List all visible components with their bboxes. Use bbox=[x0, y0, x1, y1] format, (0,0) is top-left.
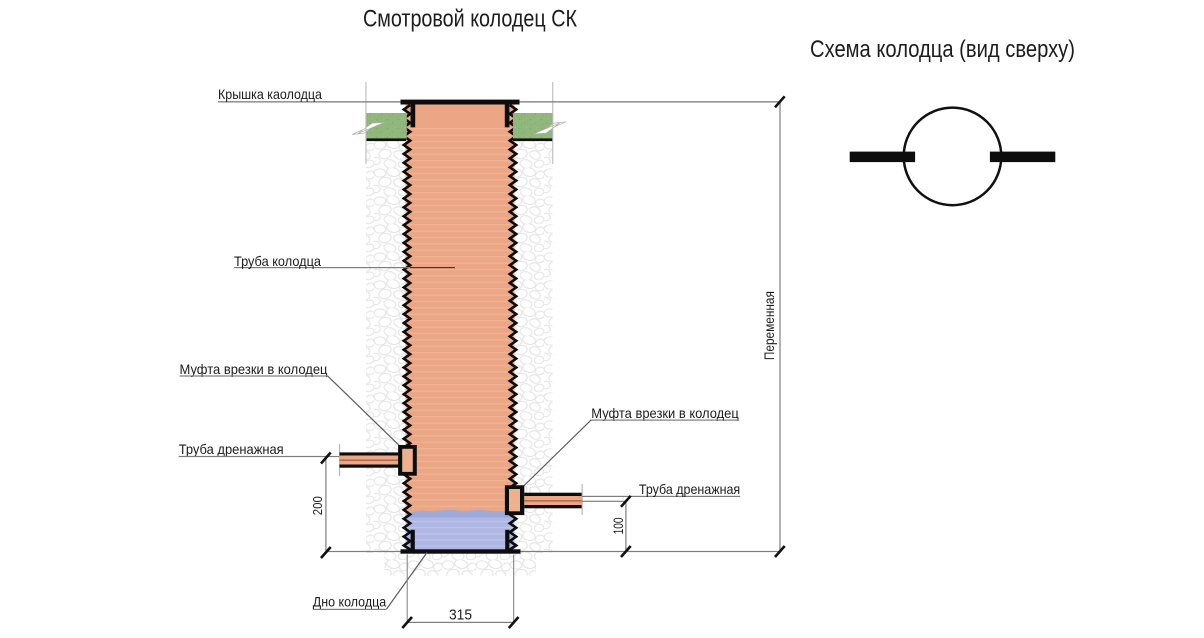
svg-text:Муфта врезки в колодец: Муфта врезки в колодец bbox=[591, 405, 739, 421]
svg-text:100: 100 bbox=[610, 517, 626, 534]
svg-text:Муфта врезки в колодец: Муфта врезки в колодец bbox=[180, 361, 328, 377]
svg-text:Переменная: Переменная bbox=[762, 291, 777, 360]
svg-text:Труба дренажная: Труба дренажная bbox=[639, 481, 740, 497]
svg-text:Схема колодца (вид сверху): Схема колодца (вид сверху) bbox=[810, 36, 1075, 63]
svg-text:Дно колодца: Дно колодца bbox=[313, 594, 387, 610]
svg-text:Труба колодца: Труба колодца bbox=[234, 253, 321, 269]
svg-text:200: 200 bbox=[310, 496, 325, 515]
svg-text:Крышка каолодца: Крышка каолодца bbox=[218, 86, 322, 102]
svg-text:Смотровой колодец СК: Смотровой колодец СК bbox=[363, 6, 577, 33]
svg-text:Труба дренажная: Труба дренажная bbox=[179, 441, 284, 457]
svg-text:315: 315 bbox=[449, 607, 472, 624]
